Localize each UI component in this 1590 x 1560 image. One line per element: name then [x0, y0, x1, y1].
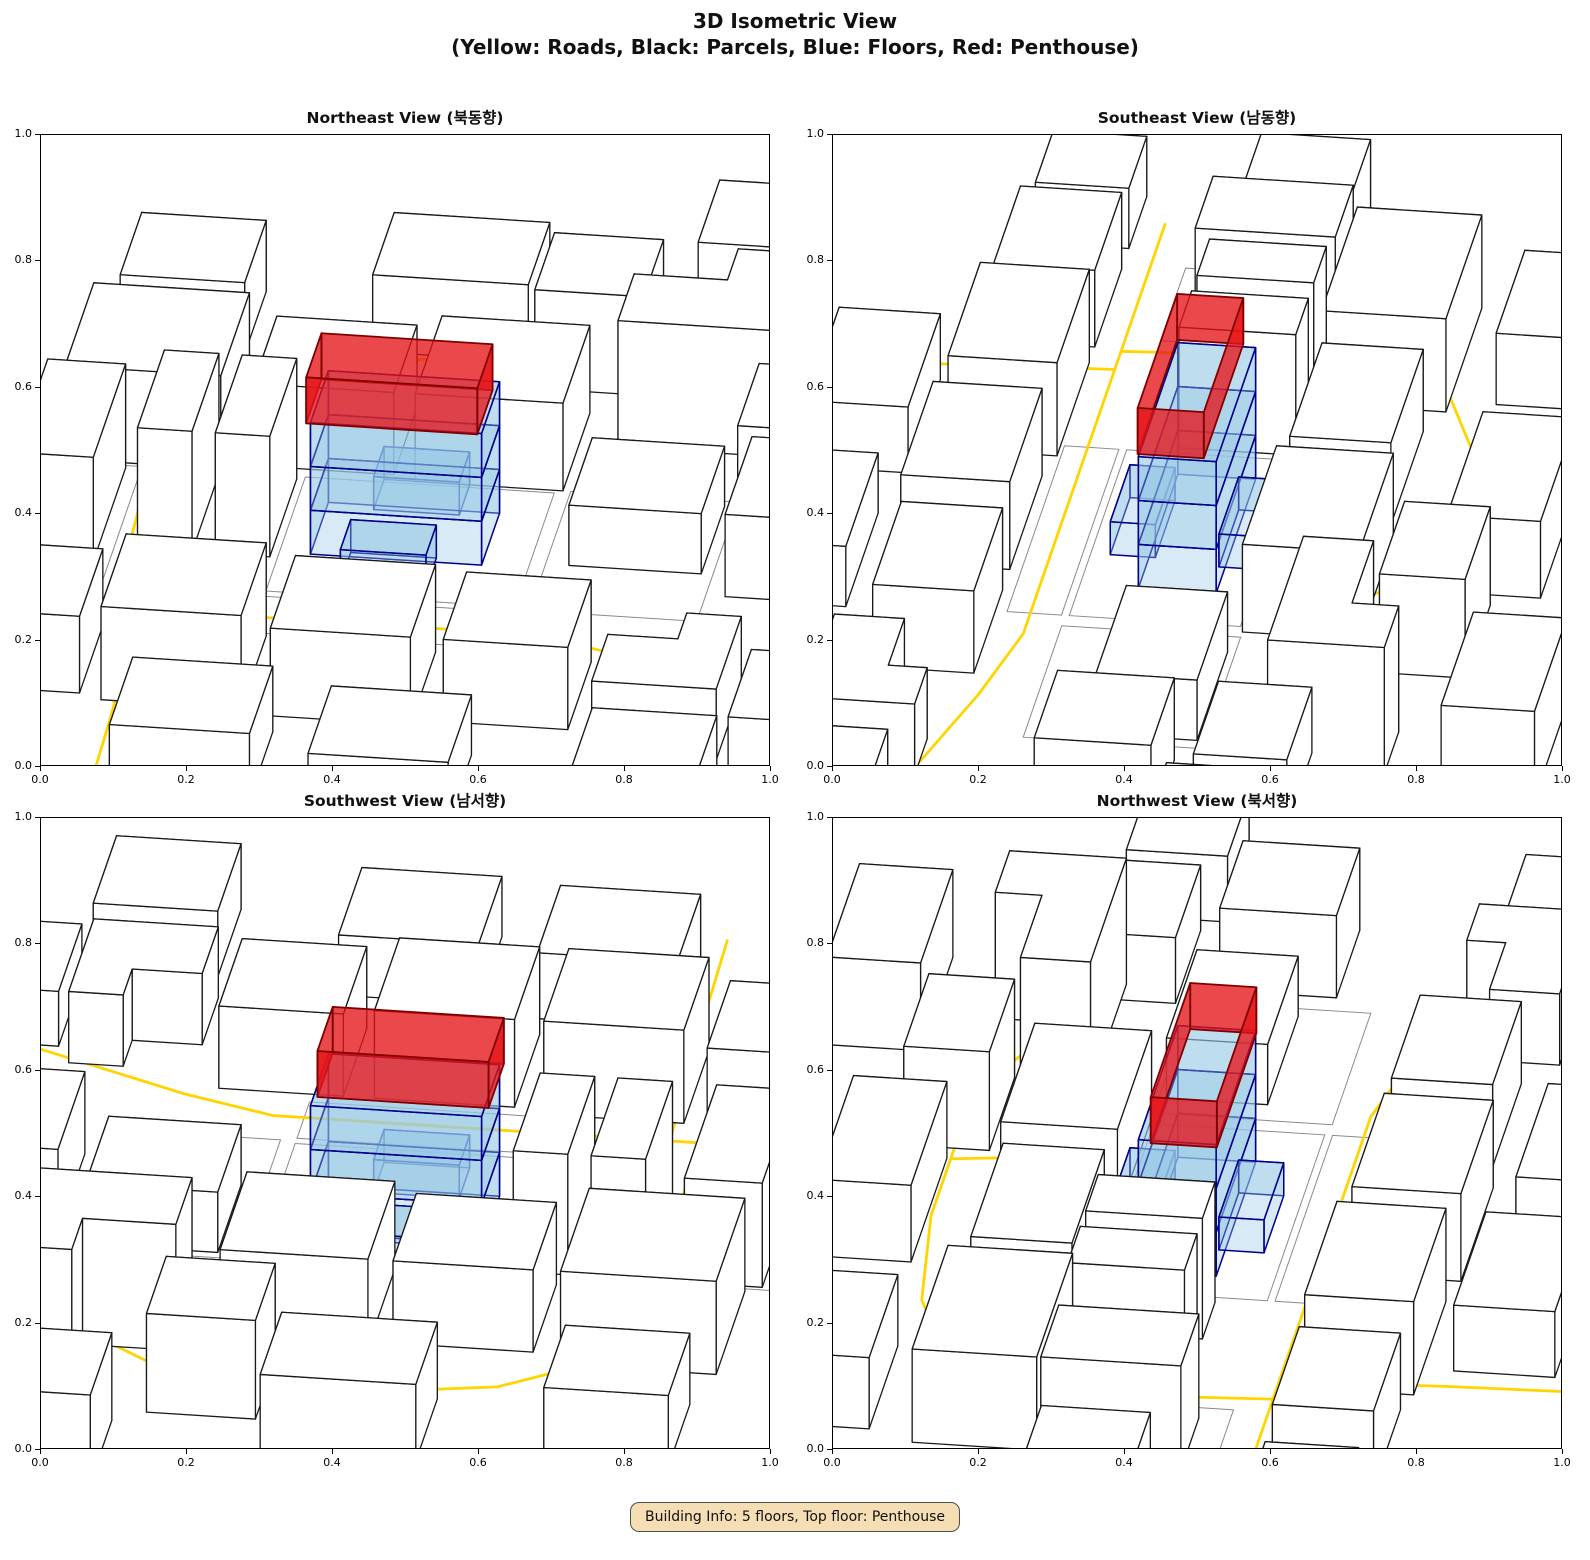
x-tick-label: 0.0 [815, 1456, 849, 1470]
y-tick-label: 0.4 [784, 1189, 824, 1203]
y-tick-label: 0.0 [784, 1442, 824, 1456]
scene-svg-northwest [833, 818, 1561, 1448]
parcel-building-top [120, 212, 266, 282]
parcel-building-top [101, 534, 266, 616]
x-tick-mark [1416, 766, 1417, 771]
plot-area-southwest [40, 817, 770, 1449]
x-tick-mark [186, 1449, 187, 1454]
parcel-building-wall [41, 986, 59, 1046]
y-tick-mark [35, 766, 40, 767]
parcel-building-wall [41, 1386, 90, 1448]
y-tick-label: 0.0 [784, 759, 824, 773]
y-tick-label: 1.0 [784, 810, 824, 824]
y-tick-label: 0.6 [0, 1063, 32, 1077]
y-tick-mark [827, 1449, 832, 1450]
parcel-building-top [393, 1194, 556, 1270]
y-tick-mark [35, 1449, 40, 1450]
parcel-building-top [569, 438, 725, 514]
x-tick-mark [832, 766, 833, 771]
y-tick-label: 0.4 [784, 506, 824, 520]
y-tick-mark [827, 640, 832, 641]
x-tick-label: 0.0 [815, 773, 849, 787]
parcel-building-top [537, 885, 700, 961]
y-tick-mark [35, 1323, 40, 1324]
parcel-building-top [109, 657, 272, 733]
y-tick-mark [35, 134, 40, 135]
parcel-building-top [561, 1188, 745, 1281]
y-tick-mark [35, 387, 40, 388]
x-tick-label: 0.2 [169, 773, 203, 787]
parcel-building-wall [725, 514, 769, 603]
y-tick-mark [35, 943, 40, 944]
subplot-southwest: Southwest View (남서향) 0.00.00.20.20.40.40… [40, 817, 770, 1449]
y-tick-label: 0.8 [0, 936, 32, 950]
penthouse-box-wall [306, 377, 477, 434]
floor-box-wall [1138, 544, 1216, 593]
x-tick-mark [186, 766, 187, 771]
x-tick-label: 1.0 [1545, 773, 1579, 787]
parcel-building-top [373, 213, 550, 285]
x-tick-label: 0.6 [461, 1456, 495, 1470]
y-tick-label: 0.4 [0, 1189, 32, 1203]
x-tick-mark [624, 1449, 625, 1454]
y-tick-label: 0.0 [0, 759, 32, 773]
parcel-building-wall [833, 1179, 911, 1262]
y-tick-label: 0.0 [0, 1442, 32, 1456]
parcel-building-wall [1454, 1305, 1555, 1377]
figure-title: 3D Isometric View [0, 8, 1590, 34]
subplot-northeast: Northeast View (북동향) 0.00.00.20.20.40.40… [40, 134, 770, 766]
parcel-building-wall [728, 717, 769, 765]
parcel-building-top [93, 836, 241, 911]
y-tick-mark [827, 260, 832, 261]
parcel-building-top [1496, 250, 1561, 339]
x-tick-label: 0.8 [1399, 1456, 1433, 1470]
parcel-building-wall [544, 1387, 668, 1448]
parcel-building-wall [569, 505, 701, 574]
plot-area-southeast [832, 134, 1562, 766]
plot-area-northeast [40, 134, 770, 766]
y-tick-mark [827, 387, 832, 388]
x-tick-label: 0.0 [23, 1456, 57, 1470]
penthouse-box-wall [317, 1051, 488, 1108]
x-tick-label: 0.8 [607, 773, 641, 787]
parcel-building-top [443, 572, 591, 647]
x-tick-mark [978, 766, 979, 771]
x-tick-mark [1562, 1449, 1563, 1454]
parcel-building-top [1197, 239, 1326, 283]
parcel-building-top [1220, 841, 1360, 916]
x-tick-label: 0.8 [1399, 773, 1433, 787]
parcel-building-wall [833, 1352, 869, 1429]
subplot-title-southeast: Southeast View (남동향) [832, 106, 1562, 128]
subplot-southeast: Southeast View (남동향) 0.00.00.20.20.40.40… [832, 134, 1562, 766]
scene-svg-southwest [41, 818, 769, 1448]
subplot-title-northeast: Northeast View (북동향) [40, 106, 770, 128]
parcel-building-wall [1496, 333, 1561, 410]
y-tick-label: 0.6 [784, 380, 824, 394]
floor-annex-box-top [340, 520, 436, 556]
parcel-building-top [374, 938, 539, 1020]
parcel-building-wall [1272, 1404, 1373, 1448]
y-tick-mark [827, 766, 832, 767]
parcel-building-top [1023, 1406, 1150, 1448]
x-tick-label: 0.2 [169, 1456, 203, 1470]
y-tick-label: 0.2 [0, 1316, 32, 1330]
y-tick-label: 0.8 [0, 253, 32, 267]
y-tick-mark [35, 260, 40, 261]
figure: 3D Isometric View (Yellow: Roads, Black:… [0, 0, 1590, 1560]
parcel-building-top [569, 708, 717, 765]
y-tick-label: 1.0 [0, 127, 32, 141]
parcel-building-wall [1441, 705, 1534, 765]
y-tick-mark [35, 817, 40, 818]
x-tick-mark [1562, 766, 1563, 771]
parcel-building-top [698, 180, 769, 251]
y-tick-mark [827, 943, 832, 944]
parcel-building-wall [69, 991, 123, 1066]
x-tick-mark [770, 766, 771, 771]
x-tick-label: 0.4 [1107, 773, 1141, 787]
parcel-building-wall [215, 433, 269, 557]
figure-subtitle: (Yellow: Roads, Black: Parcels, Blue: Fl… [0, 34, 1590, 60]
x-tick-mark [332, 1449, 333, 1454]
x-tick-mark [1270, 766, 1271, 771]
x-tick-mark [1124, 1449, 1125, 1454]
x-tick-mark [1270, 1449, 1271, 1454]
x-tick-label: 0.4 [1107, 1456, 1141, 1470]
penthouse-box-wall [1151, 1097, 1217, 1147]
y-tick-label: 0.8 [784, 253, 824, 267]
parcel-building-top [1086, 1175, 1215, 1219]
floor-box-wall [1138, 457, 1216, 506]
parcel-building-wall [41, 609, 79, 693]
y-tick-mark [35, 1196, 40, 1197]
y-tick-mark [827, 1070, 832, 1071]
y-tick-label: 0.2 [0, 633, 32, 647]
parcel-building-top [1041, 1305, 1199, 1366]
x-tick-label: 0.0 [23, 773, 57, 787]
x-tick-mark [832, 1449, 833, 1454]
y-tick-label: 0.2 [784, 1316, 824, 1330]
y-tick-label: 0.2 [784, 633, 824, 647]
parcel-building-top [684, 1085, 769, 1183]
y-tick-label: 1.0 [784, 127, 824, 141]
y-tick-mark [35, 513, 40, 514]
parcel-building-top [260, 1312, 437, 1384]
parcel-building-top [339, 868, 502, 944]
parcel-building-top [270, 556, 435, 638]
x-tick-label: 0.6 [1253, 1456, 1287, 1470]
y-tick-mark [35, 1070, 40, 1071]
parcel-building-top [308, 686, 471, 762]
floor-box-wall [1138, 501, 1216, 550]
x-tick-label: 0.2 [961, 1456, 995, 1470]
building-info-box: Building Info: 5 floors, Top floor: Pent… [630, 1502, 960, 1532]
parcel-building-wall [260, 1374, 416, 1448]
subplot-title-northwest: Northwest View (북서향) [832, 789, 1562, 811]
y-tick-mark [827, 513, 832, 514]
x-tick-label: 1.0 [1545, 1456, 1579, 1470]
x-tick-mark [1124, 766, 1125, 771]
x-tick-label: 1.0 [753, 773, 787, 787]
parcel-building-top [1516, 1084, 1561, 1184]
x-tick-mark [478, 766, 479, 771]
y-tick-mark [827, 1196, 832, 1197]
parcel-building-top [544, 1325, 690, 1395]
y-tick-mark [827, 134, 832, 135]
scene-svg-southeast [833, 135, 1561, 765]
x-tick-mark [40, 1449, 41, 1454]
x-tick-label: 1.0 [753, 1456, 787, 1470]
parcel-building-wall [132, 969, 202, 1045]
y-tick-label: 0.6 [0, 380, 32, 394]
penthouse-box-wall [1138, 408, 1204, 458]
parcel-building-top [147, 1256, 276, 1320]
subplot-title-southwest: Southwest View (남서향) [40, 789, 770, 811]
x-tick-mark [332, 766, 333, 771]
y-tick-mark [35, 640, 40, 641]
parcel-building-top [220, 1172, 395, 1259]
x-tick-mark [478, 1449, 479, 1454]
x-tick-label: 0.4 [315, 1456, 349, 1470]
parcel-building-wall [138, 428, 192, 552]
x-tick-label: 0.2 [961, 773, 995, 787]
y-tick-mark [827, 817, 832, 818]
parcel-building-top [544, 949, 709, 1031]
x-tick-mark [770, 1449, 771, 1454]
x-tick-mark [40, 766, 41, 771]
parcel-building-top [1195, 176, 1353, 237]
x-tick-label: 0.6 [1253, 773, 1287, 787]
x-tick-label: 0.8 [607, 1456, 641, 1470]
y-tick-label: 0.4 [0, 506, 32, 520]
x-tick-label: 0.6 [461, 773, 495, 787]
parcel-building-wall [912, 1349, 1036, 1448]
x-tick-mark [624, 766, 625, 771]
parcel-building-top [219, 939, 367, 1014]
floor-annex-box-wall [1219, 1217, 1264, 1253]
subplot-northwest: Northwest View (북서향) 0.00.00.20.20.40.40… [832, 817, 1562, 1449]
parcel-building-top [1068, 1226, 1197, 1270]
y-tick-label: 0.6 [784, 1063, 824, 1077]
parcel-building-top [1034, 670, 1174, 745]
parcel-building-top [1035, 135, 1146, 188]
parcel-building-top [707, 981, 769, 1056]
y-tick-label: 1.0 [0, 810, 32, 824]
x-tick-mark [1416, 1449, 1417, 1454]
x-tick-mark [978, 1449, 979, 1454]
parcel-building-top [592, 613, 742, 689]
parcel-building-wall [833, 540, 846, 607]
scene-svg-northeast [41, 135, 769, 765]
y-tick-label: 0.8 [784, 936, 824, 950]
x-tick-label: 0.4 [315, 773, 349, 787]
parcel-building-wall [147, 1313, 256, 1419]
y-tick-mark [827, 1323, 832, 1324]
plot-area-northwest [832, 817, 1562, 1449]
